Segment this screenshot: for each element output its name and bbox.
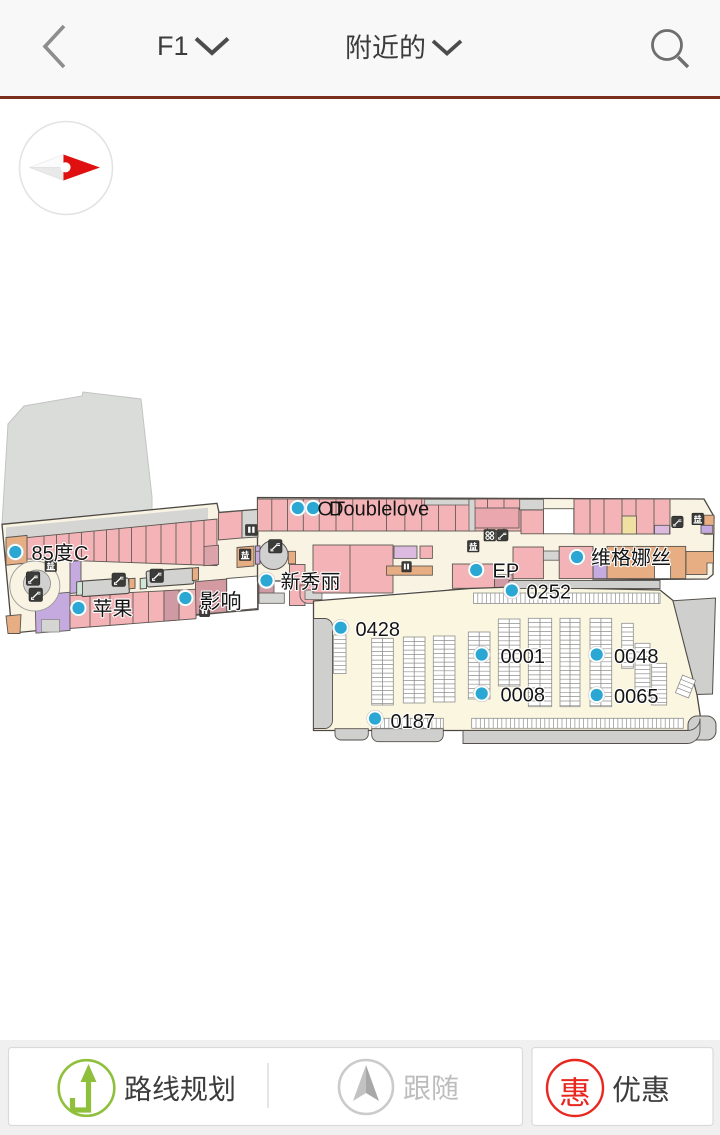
svg-text:0187: 0187 — [391, 711, 436, 733]
svg-text:85: 85 — [32, 543, 54, 565]
svg-text:0001: 0001 — [501, 646, 546, 668]
svg-text:F1: F1 — [157, 31, 189, 61]
svg-text:0048: 0048 — [614, 646, 659, 668]
svg-text:0428: 0428 — [356, 619, 401, 641]
svg-text:EP: EP — [493, 561, 520, 583]
svg-text:0065: 0065 — [614, 686, 659, 708]
svg-text:Doublelove: Doublelove — [329, 499, 429, 521]
svg-text:C: C — [74, 543, 88, 565]
svg-text:0008: 0008 — [501, 685, 546, 707]
svg-text:0252: 0252 — [527, 582, 572, 604]
